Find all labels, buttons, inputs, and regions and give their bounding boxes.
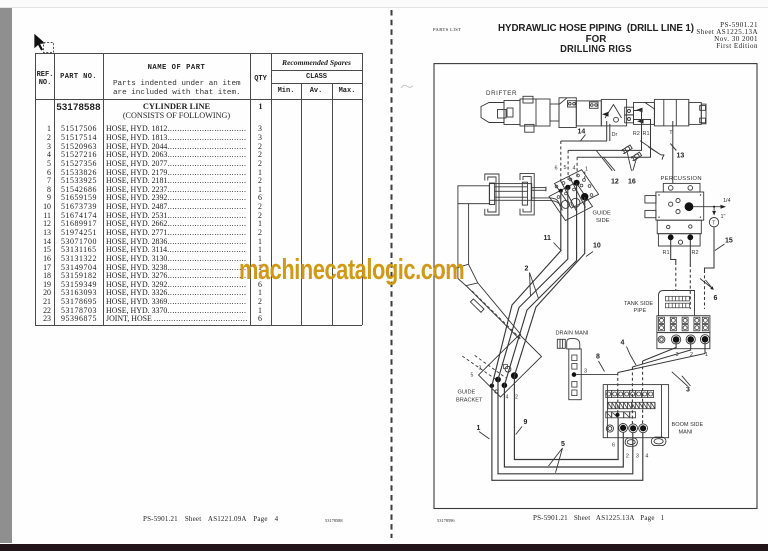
svg-text:11: 11 [544, 235, 552, 242]
svg-text:3: 3 [686, 387, 690, 394]
svg-text:R2: R2 [633, 131, 640, 137]
svg-text:DRIFTER: DRIFTER [486, 90, 517, 97]
svg-text:3: 3 [584, 369, 587, 375]
svg-text:16: 16 [628, 179, 636, 186]
svg-text:8: 8 [596, 354, 600, 361]
svg-text:2: 2 [525, 266, 529, 273]
svg-text:5: 5 [564, 165, 567, 171]
svg-text:BRACKET: BRACKET [456, 398, 483, 404]
svg-text:3: 3 [676, 352, 679, 358]
svg-text:SIDE: SIDE [596, 218, 610, 224]
svg-text:14: 14 [578, 129, 586, 136]
svg-text:Dr: Dr [612, 132, 618, 138]
svg-text:4: 4 [573, 165, 576, 171]
svg-text:2: 2 [515, 395, 518, 401]
svg-text:4: 4 [645, 454, 648, 460]
svg-text:GUIDE: GUIDE [593, 211, 611, 217]
svg-text:5: 5 [471, 373, 474, 379]
svg-text:DRAIN MANI: DRAIN MANI [556, 331, 589, 337]
svg-text:3: 3 [636, 454, 639, 460]
svg-text:1: 1 [585, 167, 588, 173]
svg-text:12: 12 [611, 179, 619, 186]
svg-text:PIPE: PIPE [634, 308, 647, 314]
svg-text:PERCUSSION: PERCUSSION [661, 176, 702, 182]
svg-text:R2: R2 [692, 250, 699, 256]
svg-text:4: 4 [621, 340, 625, 347]
svg-text:15: 15 [725, 237, 733, 244]
svg-text:BOOM SIDE: BOOM SIDE [672, 422, 704, 428]
svg-text:4: 4 [506, 395, 509, 401]
svg-text:10: 10 [593, 243, 601, 250]
svg-text:1/4: 1/4 [723, 198, 731, 204]
svg-text:TANK SIDE: TANK SIDE [624, 301, 653, 307]
svg-text:1": 1" [721, 214, 726, 220]
svg-text:2: 2 [626, 454, 629, 460]
svg-text:5: 5 [561, 441, 565, 448]
svg-text:3: 3 [479, 366, 482, 372]
svg-text:13: 13 [677, 153, 685, 160]
svg-text:6: 6 [714, 295, 718, 302]
svg-text:R1: R1 [643, 131, 650, 137]
svg-text:9: 9 [524, 419, 528, 426]
svg-text:T: T [712, 220, 715, 226]
svg-text:MANI: MANI [679, 430, 693, 436]
svg-text:GUIDE: GUIDE [458, 390, 476, 396]
svg-text:7: 7 [661, 155, 665, 162]
svg-text:R1: R1 [663, 250, 670, 256]
svg-text:1: 1 [477, 425, 481, 432]
svg-text:6: 6 [555, 166, 558, 172]
svg-text:6: 6 [612, 443, 615, 449]
